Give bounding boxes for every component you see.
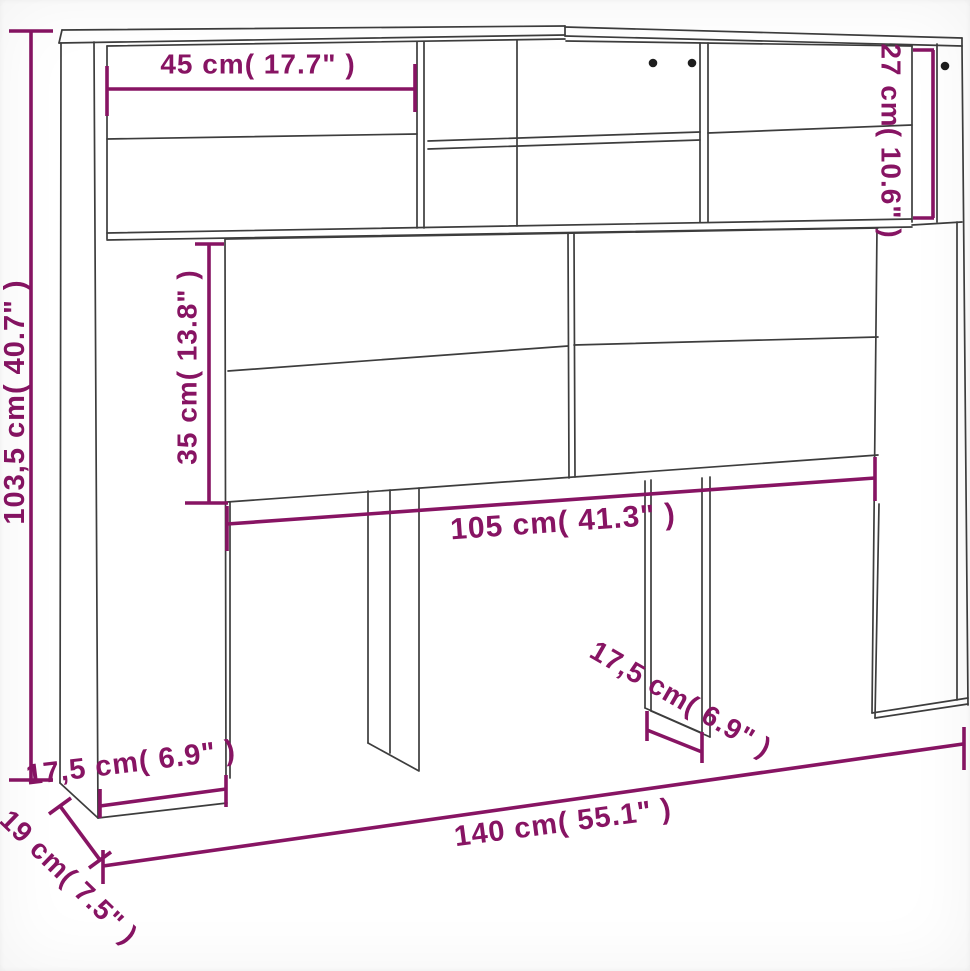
dim-door-section-width: 105 cm( 41.3" ) xyxy=(227,457,875,551)
dimension-diagram: 103,5 cm( 40.7" ) 45 cm( 17.7" ) 27 cm( … xyxy=(0,0,970,971)
dim-top-section-height: 27 cm( 10.6" ) xyxy=(876,43,935,238)
dimension-line xyxy=(100,789,226,806)
top-section-height-label: 27 cm( 10.6" ) xyxy=(876,43,907,238)
screw-hole-dot xyxy=(649,59,658,68)
top-shelf-width-label: 45 cm( 17.7" ) xyxy=(160,49,355,80)
dimension-line xyxy=(647,730,702,752)
base-depth-left-label: 17,5 cm( 6.9" ) xyxy=(24,734,237,791)
headboard-cabinet-drawing: 103,5 cm( 40.7" ) 45 cm( 17.7" ) 27 cm( … xyxy=(0,0,970,971)
dim-overall-height: 103,5 cm( 40.7" ) xyxy=(0,31,53,780)
dim-door-section-height: 35 cm( 13.8" ) xyxy=(172,244,229,503)
dimension-tick xyxy=(49,798,71,814)
dim-overall-depth: 19 cm( 7.5" ) xyxy=(0,798,144,950)
dim-base-depth-center: 17,5 cm( 6.9" ) xyxy=(585,635,777,764)
top-board xyxy=(59,26,962,46)
overall-depth-label: 19 cm( 7.5" ) xyxy=(0,804,144,951)
screw-hole-dot xyxy=(688,59,697,68)
dim-top-shelf-width: 45 cm( 17.7" ) xyxy=(107,49,415,117)
door-section-height-label: 35 cm( 13.8" ) xyxy=(172,269,203,464)
door-section xyxy=(225,228,879,778)
screw-hole-dot xyxy=(941,62,950,71)
overall-height-label: 103,5 cm( 40.7" ) xyxy=(0,279,31,524)
